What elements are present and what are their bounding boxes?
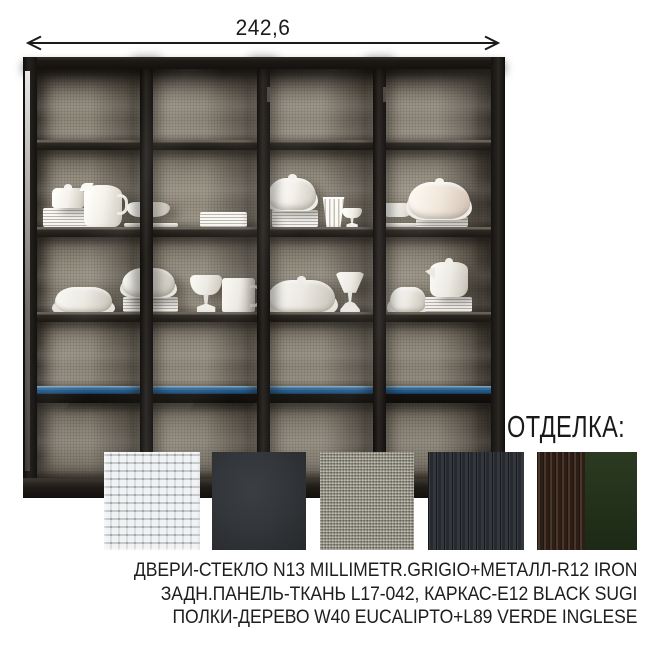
dimension-value: 242,6 [38, 15, 488, 41]
display-cabinet-image [23, 57, 505, 498]
plate-stack [200, 212, 247, 227]
swatch-eucalipto-verde-inglese [537, 452, 637, 550]
coffee-pot [430, 262, 468, 297]
description-line: ДВЕРИ-СТЕКЛО N13 MILLIMETR.GRIGIO+МЕТАЛЛ… [134, 559, 637, 583]
mug [222, 278, 255, 312]
glass-reflection [25, 71, 30, 471]
cabinet-frame-right [491, 57, 505, 498]
door-frame-mullion [140, 57, 153, 478]
small-tureen [390, 287, 426, 312]
description-line: ПОЛКИ-ДЕРЕВО W40 EUCALIPTO+L89 VERDE ING… [134, 606, 637, 630]
swatch-metal-iron [212, 452, 306, 550]
campana-vase [335, 272, 365, 312]
cabinet-frame-top [23, 57, 505, 69]
door-frame-mullion [373, 57, 386, 478]
swatch-verde-inglese [585, 452, 637, 550]
door-frame-mullion [257, 57, 270, 478]
swatch-glass-millimetr-grigio [104, 452, 200, 550]
product-card: 242,6 [0, 0, 672, 672]
tureen [268, 178, 316, 210]
description-line: ЗАДН.ПАНЕЛЬ-ТКАНЬ L17-042, КАРКАС-E12 BL… [134, 583, 637, 607]
pitcher [84, 185, 122, 227]
plate-stack [272, 210, 318, 227]
swatch-wood-eucalipto [537, 452, 585, 550]
swatch-wood-black-sugi [428, 452, 524, 550]
pedestal-urn [190, 275, 222, 312]
footed-cup [342, 208, 362, 227]
soup-tureen [55, 287, 112, 312]
door-handle [383, 87, 386, 102]
plate-stack [425, 297, 472, 312]
finish-description: ДВЕРИ-СТЕКЛО N13 MILLIMETR.GRIGIO+МЕТАЛЛ… [134, 559, 637, 630]
tureen [408, 182, 470, 219]
door-handle [267, 87, 270, 102]
lidded-box [52, 188, 84, 208]
plate-stack [43, 208, 90, 227]
swatch-fabric-l17-042 [320, 452, 414, 550]
casserole [268, 280, 335, 312]
finish-heading: ОТДЕЛКА: [507, 411, 625, 442]
